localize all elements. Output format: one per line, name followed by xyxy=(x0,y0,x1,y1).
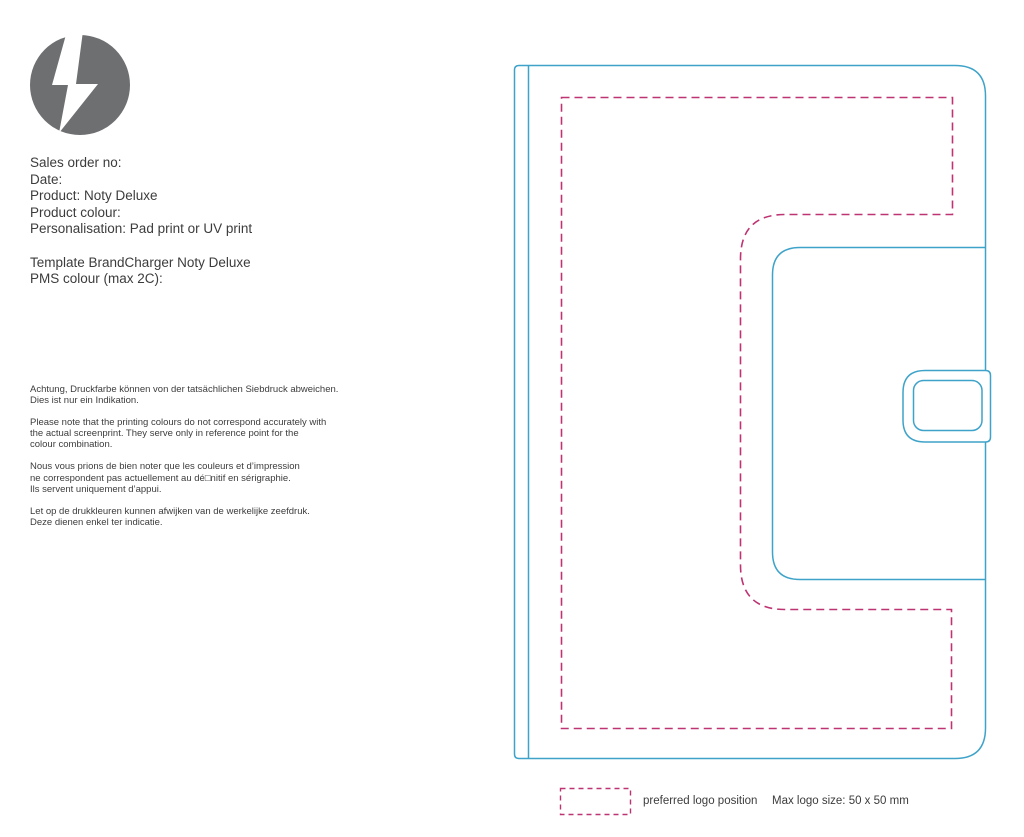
order-info-line-personalisation: Personalisation: Pad print or UV print xyxy=(30,221,252,238)
order-info-line-template: Template BrandCharger Noty Deluxe xyxy=(30,255,252,272)
disclaimer-french: Nous vous prions de bien noter que les c… xyxy=(30,461,370,494)
order-fields: Sales order no: Date: Product: Noty Delu… xyxy=(30,155,252,238)
disclaimer-german: Achtung, Druckfarbe können von der tatsä… xyxy=(30,384,370,406)
disclaimer-block: Achtung, Druckfarbe können von der tatsä… xyxy=(30,384,370,528)
template-fields: Template BrandCharger Noty Deluxe PMS co… xyxy=(30,255,252,288)
order-info-line-pms-colour: PMS colour (max 2C): xyxy=(30,271,252,288)
disclaimer-line: Deze dienen enkel ter indicatie. xyxy=(30,517,370,528)
legend-max-logo-size-label: Max logo size: 50 x 50 mm xyxy=(772,795,909,807)
disclaimer-line: Please note that the printing colours do… xyxy=(30,417,370,428)
disclaimer-line: Let op de drukkleuren kunnen afwijken va… xyxy=(30,506,370,517)
closure-tab-inner xyxy=(914,381,983,431)
order-info-block: Sales order no: Date: Product: Noty Delu… xyxy=(30,155,252,288)
legend-preferred-logo-label: preferred logo position xyxy=(643,795,757,807)
disclaimer-line: Dies ist nur ein Indikation. xyxy=(30,395,370,406)
order-info-line-date: Date: xyxy=(30,172,252,189)
template-page: Sales order no: Date: Product: Noty Delu… xyxy=(0,0,1024,837)
disclaimer-line: Achtung, Druckfarbe können von der tatsä… xyxy=(30,384,370,395)
disclaimer-line: ne correspondent pas actuellement au dé□… xyxy=(30,473,370,484)
order-info-line-sales-order: Sales order no: xyxy=(30,155,252,172)
disclaimer-dutch: Let op de drukkleuren kunnen afwijken va… xyxy=(30,506,370,528)
disclaimer-english: Please note that the printing colours do… xyxy=(30,417,370,450)
disclaimer-line: the actual screenprint. They serve only … xyxy=(30,428,370,439)
disclaimer-line: Ils servent uniquement d’appui. xyxy=(30,484,370,495)
disclaimer-line: Nous vous prions de bien noter que les c… xyxy=(30,461,370,472)
order-info-line-product-colour: Product colour: xyxy=(30,205,252,222)
disclaimer-line: colour combination. xyxy=(30,439,370,450)
notebook-drawing xyxy=(515,66,991,759)
brand-logo xyxy=(30,31,130,135)
legend-logo-position-swatch xyxy=(561,789,631,815)
order-info-line-product: Product: Noty Deluxe xyxy=(30,188,252,205)
